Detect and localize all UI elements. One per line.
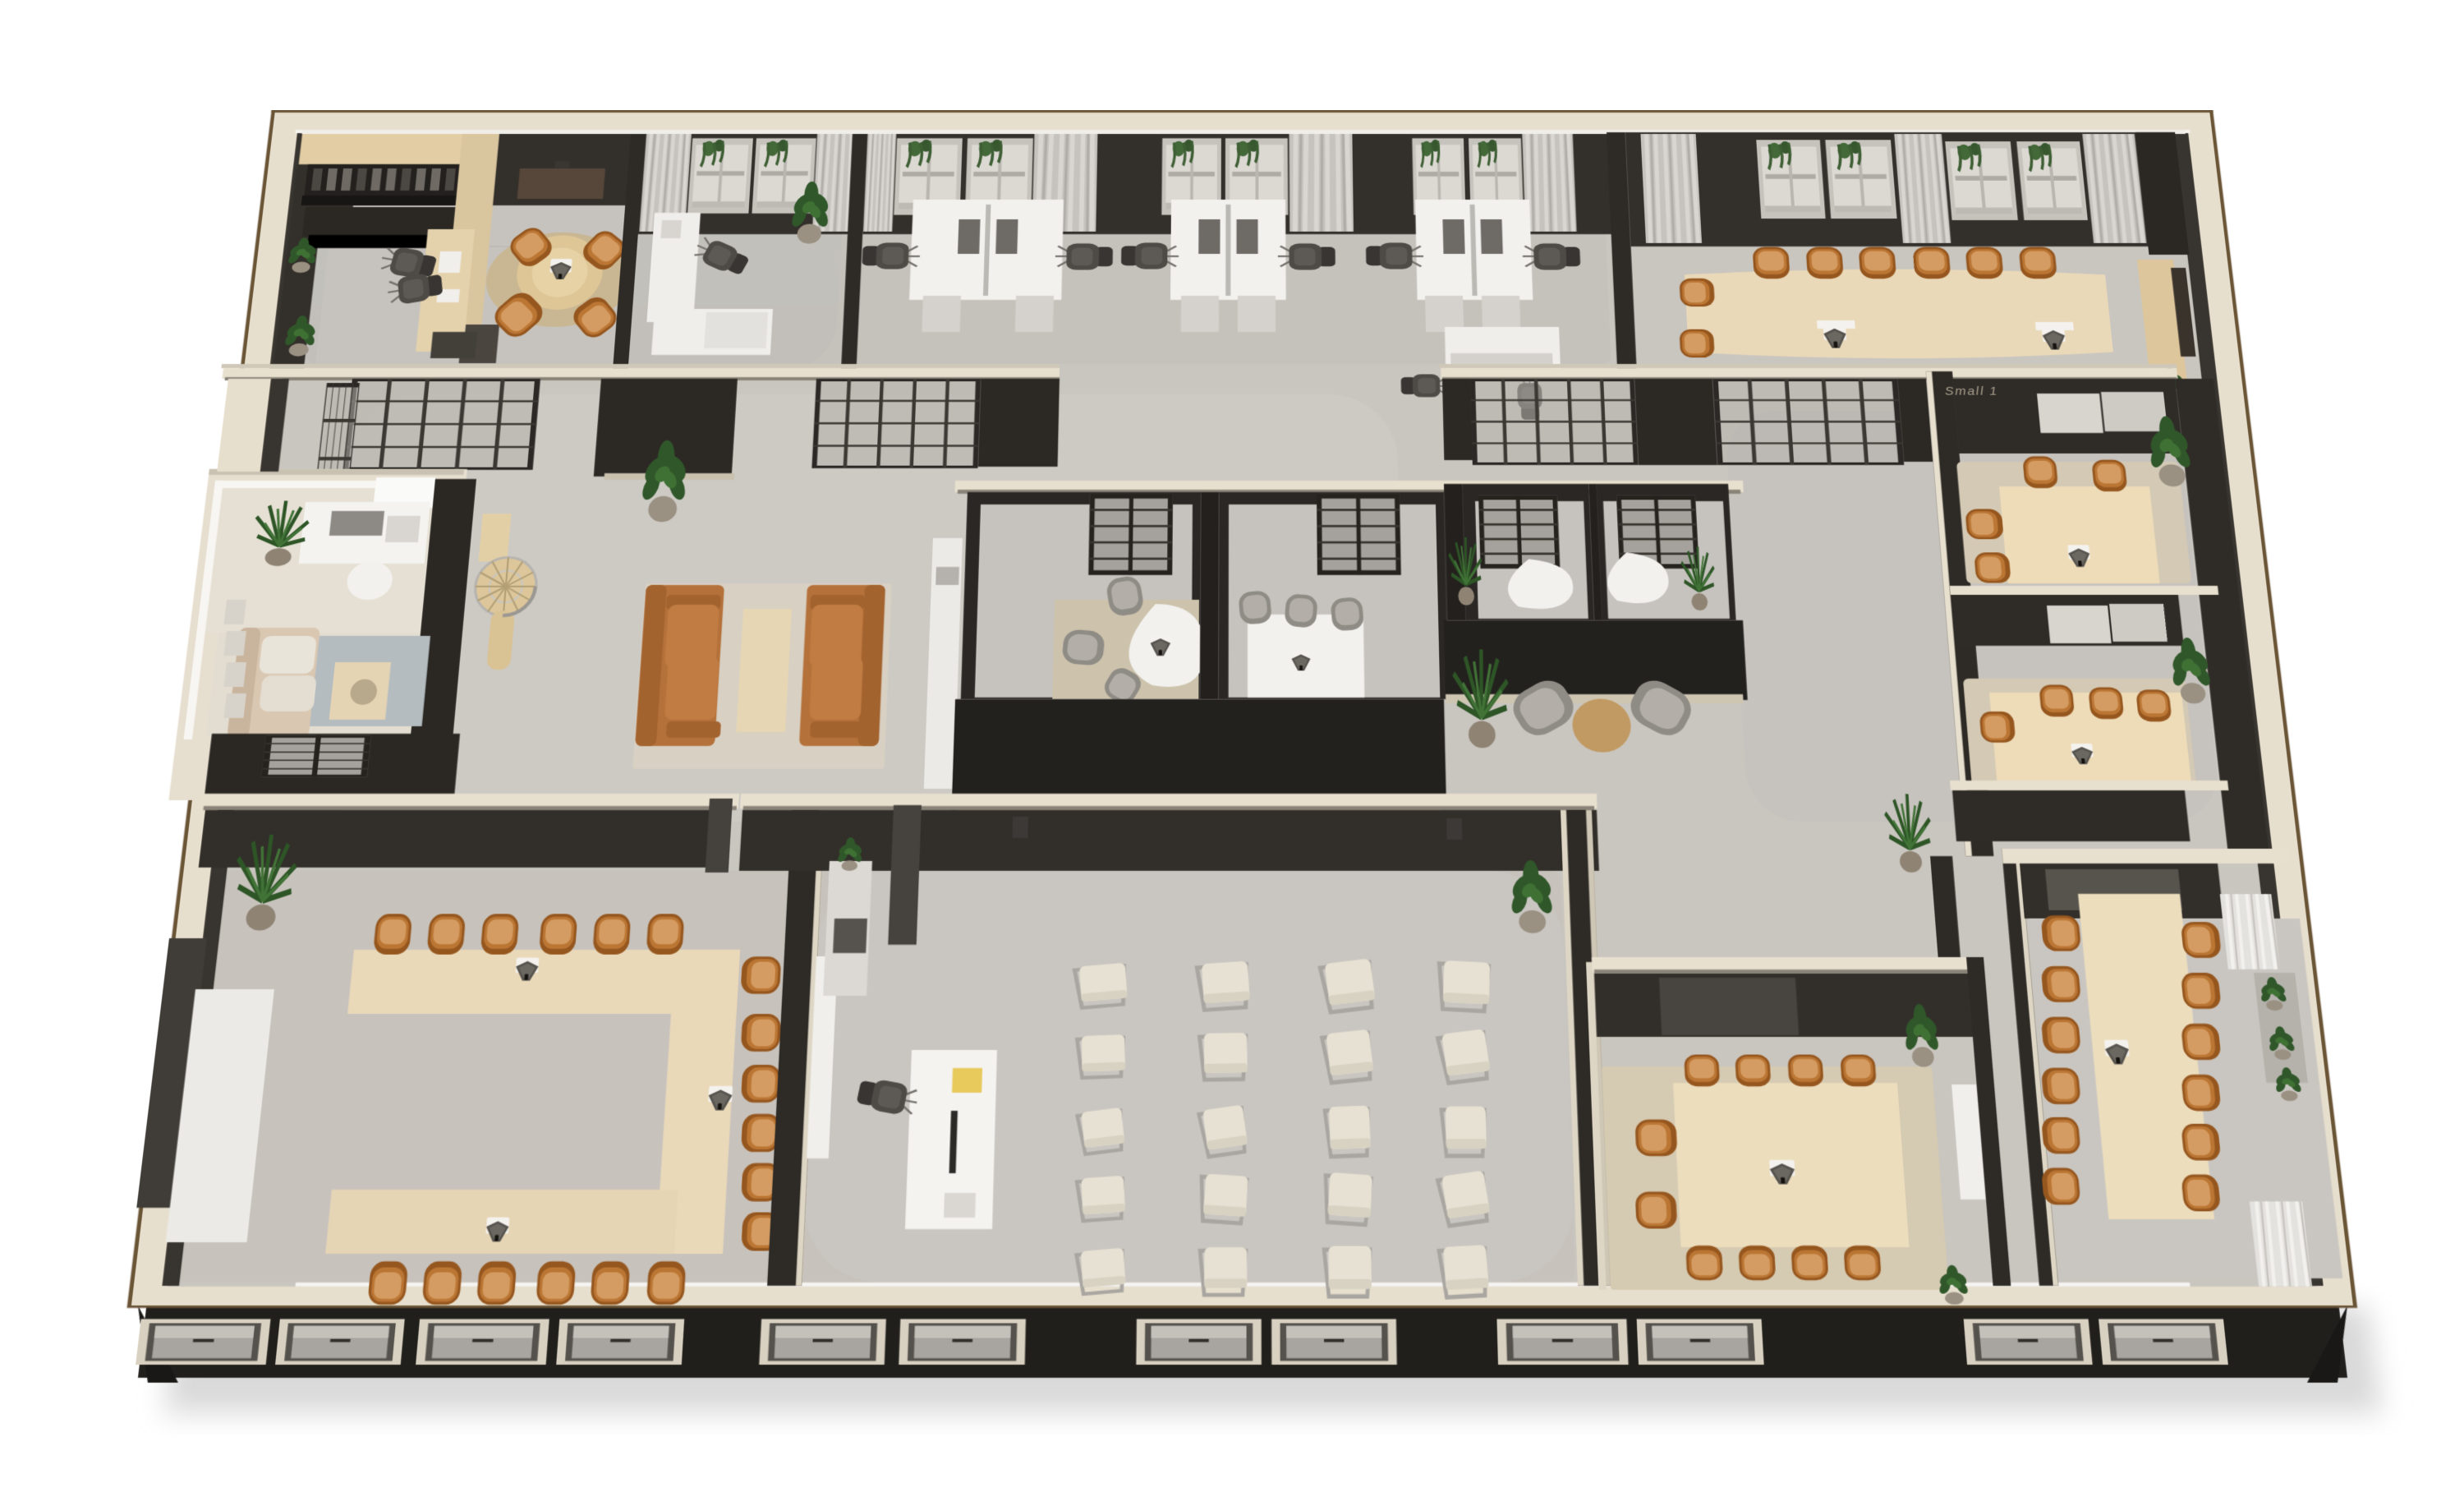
svg-text:Small 1: Small 1 [1944, 385, 1998, 398]
